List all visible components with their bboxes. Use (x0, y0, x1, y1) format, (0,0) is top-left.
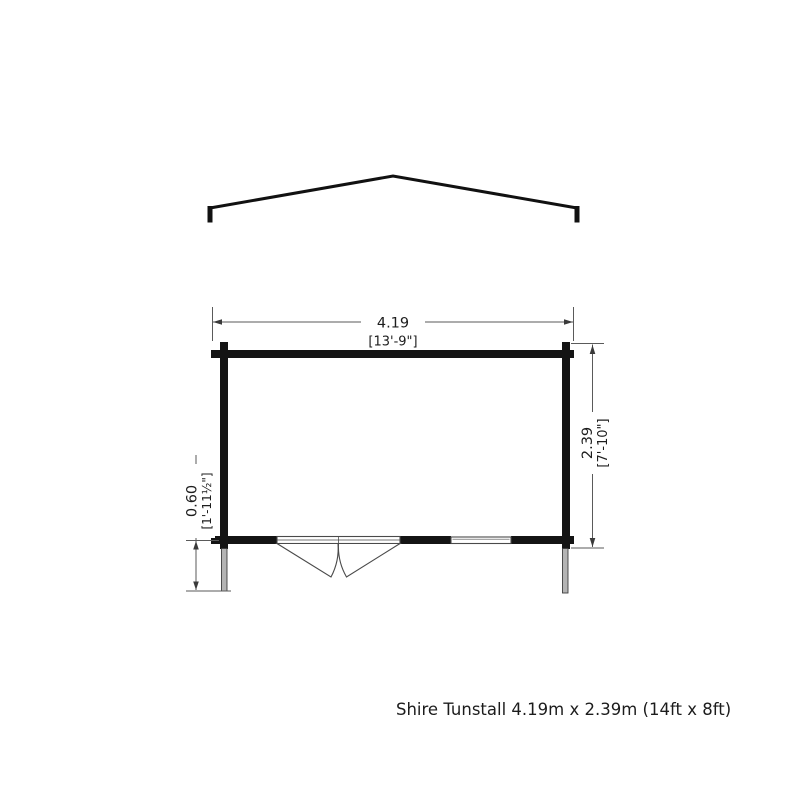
wall-right (562, 342, 570, 549)
roof-eave-right (575, 206, 580, 223)
width-arrow-right (564, 319, 573, 325)
post-right (563, 549, 569, 594)
depth-metric-label: 2.39 (580, 427, 596, 459)
door-leaf-left (277, 544, 338, 578)
wall-bottom-right-segment (511, 536, 574, 544)
depth-arrow-top (590, 345, 596, 354)
product-caption: Shire Tunstall 4.19m x 2.39m (14ft x 8ft… (396, 700, 776, 719)
wall-bottom-left-segment (211, 536, 277, 544)
plan-walls (211, 342, 574, 549)
wall-left (220, 342, 228, 549)
corner-posts (222, 549, 569, 594)
overhang-arrow-top (193, 541, 199, 550)
overhang-metric-label: 0.60 (185, 485, 201, 517)
depth-arrow-bottom (590, 538, 596, 547)
overhang-arrow-bottom (193, 582, 199, 591)
width-arrow-left (213, 319, 222, 325)
door-leaf-right (338, 544, 400, 578)
width-metric-label: 4.19 (377, 316, 409, 332)
floor-plan-drawing: 4.19 [13'-9"] 2.39 [7'-10"] 0.60 [1'-11½… (0, 0, 800, 800)
overhang-imperial-label: [1'-11½"] (200, 472, 214, 529)
double-door (277, 537, 400, 578)
wall-bottom-mid-segment (400, 536, 451, 544)
floor-plan-page: 4.19 [13'-9"] 2.39 [7'-10"] 0.60 [1'-11½… (0, 0, 800, 800)
wall-top (211, 350, 574, 358)
roof-ridge-line (210, 176, 577, 208)
window (451, 537, 511, 544)
roof-eave-left (208, 206, 213, 223)
dimension-width: 4.19 [13'-9"] (213, 307, 574, 350)
depth-imperial-label: [7'-10"] (596, 418, 611, 467)
width-imperial-label: [13'-9"] (368, 335, 417, 350)
post-left (222, 549, 228, 592)
roof-profile (208, 176, 580, 223)
window-frame (451, 537, 511, 544)
dimension-depth: 2.39 [7'-10"] (571, 344, 611, 549)
